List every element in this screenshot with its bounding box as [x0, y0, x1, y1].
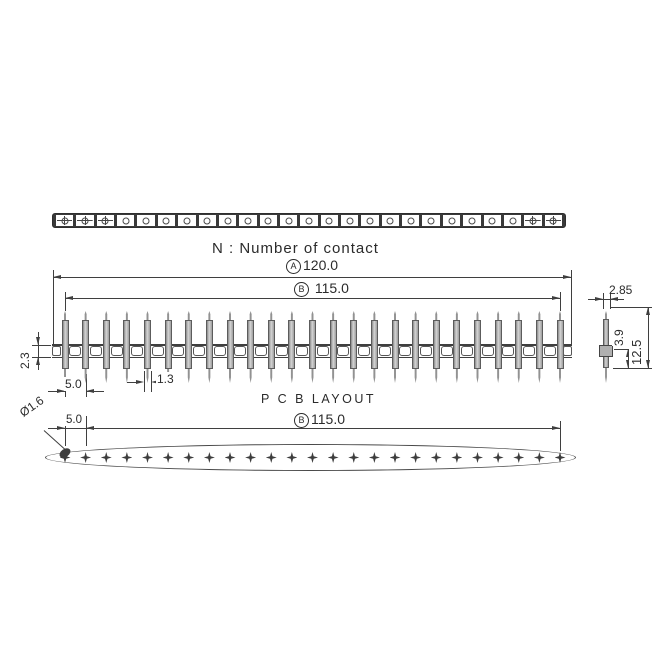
contact-pin-ptipb [371, 369, 378, 383]
contact-pin [371, 311, 378, 383]
dim-pcb-span-value: 115.0 [311, 411, 345, 427]
contact-pin-pbody [350, 320, 357, 369]
body-link [523, 346, 535, 356]
strip-cell [97, 215, 114, 226]
contact-pin-pbody [82, 320, 89, 369]
contact-pin [123, 311, 130, 383]
body-end-cap-right [563, 346, 572, 356]
arrow-pcb-pitch-left [57, 426, 65, 430]
contact-pin [536, 311, 543, 383]
arrow-detail-width-left [595, 297, 603, 301]
contact-pin-pbody [536, 320, 543, 369]
contact-pin [268, 311, 275, 383]
contact-pin-ptipb [103, 369, 110, 383]
contact-pin-pbody [144, 320, 151, 369]
contact-pin-ptipt [144, 311, 151, 320]
contact-pin-pbody [227, 320, 234, 369]
contact-pin-ptipb [206, 369, 213, 383]
contact-pin-ptipt [62, 311, 69, 320]
contact-pin-ptipt [392, 311, 399, 320]
arrow-pcb-span-right [552, 426, 560, 430]
ext-line-body-top [30, 345, 51, 346]
dim-pin-total-length: 12.5 [629, 317, 644, 365]
technical-drawing-pin-header: N : Number of contact A120.0 B 115.0 2.3… [0, 0, 667, 655]
pcb-layout-title: P C B LAYOUT [261, 392, 376, 406]
contact-pin-ptipt [536, 311, 543, 320]
ext-line-body-bottom [30, 357, 51, 358]
contact-pin [330, 311, 337, 383]
strip-cell [484, 215, 501, 226]
contact-pin-ptipb [268, 369, 275, 383]
dim-line-detail-width [588, 299, 624, 300]
contact-pin-ptipb [227, 369, 234, 383]
contact-pin-pbody [185, 320, 192, 369]
arrow-detail-width-right [610, 297, 618, 301]
body-link [172, 346, 184, 356]
contact-pin-pbody [453, 320, 460, 369]
contact-pin-pbody [62, 320, 69, 369]
body-link [276, 346, 288, 356]
arrow-b-right [552, 296, 560, 300]
contact-pin-ptipt [82, 311, 89, 320]
contact-pin [453, 311, 460, 383]
arrow-total-bottom [646, 360, 650, 368]
contact-pin-ptipt [350, 311, 357, 320]
contact-pin [103, 311, 110, 383]
strip-cell [545, 215, 562, 226]
contact-pin-pbody [515, 320, 522, 369]
body-link [544, 346, 556, 356]
contact-pin-ptipb [536, 369, 543, 383]
strip-cell [463, 215, 480, 226]
arrow-a-right [563, 275, 571, 279]
strip-cell [443, 215, 460, 226]
contact-pin-ptipt [288, 311, 295, 320]
dim-contact-span: B 115.0 [292, 280, 351, 297]
dim-pcb-hole-pitch: 5.0 [65, 414, 83, 426]
contact-pin-pbody [165, 320, 172, 369]
contact-pin-pbody [412, 320, 419, 369]
contact-pin-ptipt [309, 311, 316, 320]
contact-pin-ptipt [515, 311, 522, 320]
strip-cell [199, 215, 216, 226]
contact-pin [82, 311, 89, 383]
detail-pin-insulator-block [599, 345, 613, 357]
body-link [90, 346, 102, 356]
contact-pin-ptipb [247, 369, 254, 383]
contact-pin-ptipb [123, 369, 130, 383]
strip-cell [239, 215, 256, 226]
dim-body-height: 2.3 [18, 343, 32, 369]
contact-pin-pbody [474, 320, 481, 369]
contact-pin-pbody [330, 320, 337, 369]
strip-cell [300, 215, 317, 226]
ext-line-detail-width-left [603, 293, 604, 309]
body-link [214, 346, 226, 356]
contact-pin-ptipt [474, 311, 481, 320]
dim-pcb-span: B115.0 [292, 411, 347, 428]
strip-cell [178, 215, 195, 226]
arrow-thickness-left [136, 380, 144, 384]
arrow-b-left [65, 296, 73, 300]
body-link [234, 346, 246, 356]
strip-cell [260, 215, 277, 226]
strip-cell [361, 215, 378, 226]
contact-pin-ptipb [185, 369, 192, 383]
contact-pin-pbody [247, 320, 254, 369]
contact-pin [144, 311, 151, 383]
contact-pin-ptipt [330, 311, 337, 320]
body-link [461, 346, 473, 356]
dim-label-b-circle: B [294, 282, 309, 297]
strip-cell [158, 215, 175, 226]
dim-line-total-length [648, 307, 649, 368]
strip-cell [504, 215, 521, 226]
strip-cell [341, 215, 358, 226]
dim-detail-pin-width: 2.85 [609, 283, 632, 297]
body-link [399, 346, 411, 356]
ext-line-b-right [560, 292, 561, 311]
ext-line-b-left [65, 292, 66, 311]
contact-pin-pbody [557, 320, 564, 369]
body-link [69, 346, 81, 356]
dim-label-a-circle: A [286, 259, 301, 274]
contact-pin-ptipt [268, 311, 275, 320]
contact-pin [247, 311, 254, 383]
contact-pin-ptipb [433, 369, 440, 383]
strip-cell [524, 215, 541, 226]
contact-pin-ptipb [82, 369, 89, 383]
arrow-pitch-right [86, 389, 94, 393]
body-link [111, 346, 123, 356]
contact-pin [309, 311, 316, 383]
contact-pin-ptipt [206, 311, 213, 320]
strip-cell [402, 215, 419, 226]
contact-pin-pbody [433, 320, 440, 369]
contact-pin-ptipb [474, 369, 481, 383]
contact-pin-ptipb [330, 369, 337, 383]
contact-pin-pbody [103, 320, 110, 369]
dim-label-pcb-b-circle: B [294, 413, 309, 428]
arrow-body-top [36, 337, 40, 345]
contact-pin-ptipt [123, 311, 130, 320]
contact-pin [474, 311, 481, 383]
body-link [131, 346, 143, 356]
body-link [441, 346, 453, 356]
contact-pin-pbody [371, 320, 378, 369]
contact-pin [206, 311, 213, 383]
body-end-cap-left [52, 346, 61, 356]
contact-pin [62, 311, 69, 383]
contact-pin-pbody [206, 320, 213, 369]
contact-pin-ptipt [227, 311, 234, 320]
contact-pin-ptipb [453, 369, 460, 383]
strip-cell [422, 215, 439, 226]
arrow-pcb-pitch-right [86, 426, 94, 430]
contact-pin-ptipt [557, 311, 564, 320]
arrow-total-top [646, 307, 650, 315]
contact-pin-pbody [288, 320, 295, 369]
ext-line-pcb-pitch-right [86, 416, 87, 446]
contact-pin-ptipb [309, 369, 316, 383]
contact-pin-ptipt [185, 311, 192, 320]
contact-pin-pbody [123, 320, 130, 369]
body-link [152, 346, 164, 356]
contact-pin-ptipt [371, 311, 378, 320]
contact-pin-ptipt [495, 311, 502, 320]
strip-cell [321, 215, 338, 226]
contact-pin-ptipt [433, 311, 440, 320]
ext-line-pcb-right [560, 421, 561, 451]
detail-pin-body [603, 319, 609, 368]
detail-pin-tip-bottom [603, 368, 609, 383]
dim-line-pcb-span [48, 428, 560, 429]
contact-pin [288, 311, 295, 383]
body-link [420, 346, 432, 356]
contact-pin [392, 311, 399, 383]
ext-line-a-right [571, 270, 572, 344]
strip-cell [56, 215, 73, 226]
arrow-body-bottom [36, 357, 40, 365]
body-link [379, 346, 391, 356]
body-link [193, 346, 205, 356]
contact-pin-pbody [392, 320, 399, 369]
dim-pin-thickness: 1.3 [156, 372, 175, 386]
contact-pin [227, 311, 234, 383]
contact-pin-pbody [268, 320, 275, 369]
dim-pin-pitch: 5.0 [64, 377, 83, 391]
contact-pin [433, 311, 440, 383]
contact-pin-ptipb [144, 369, 151, 383]
arrow-a-left [53, 275, 61, 279]
strip-cell [76, 215, 93, 226]
strip-cell [137, 215, 154, 226]
strip-cell [382, 215, 399, 226]
body-link [317, 346, 329, 356]
contact-pin-ptipb [515, 369, 522, 383]
ext-line-detail-bottom [613, 368, 652, 369]
dim-contact-span-value: 115.0 [315, 280, 349, 296]
body-link [255, 346, 267, 356]
contact-pin-ptipb [288, 369, 295, 383]
contact-pin-ptipb [350, 369, 357, 383]
dim-hole-diameter: Ø1.6 [17, 393, 46, 419]
contact-pin-ptipb [557, 369, 564, 383]
body-link [296, 346, 308, 356]
contact-pin-ptipt [165, 311, 172, 320]
body-link [358, 346, 370, 356]
ext-line-a-left [53, 270, 54, 344]
body-link [502, 346, 514, 356]
strip-cell [280, 215, 297, 226]
contact-pin [557, 311, 564, 383]
strip-cell [117, 215, 134, 226]
contact-pin [495, 311, 502, 383]
strip-cell [219, 215, 236, 226]
contact-pin [412, 311, 419, 383]
contact-pin [515, 311, 522, 383]
top-view-strip [52, 213, 566, 228]
dim-line-b [65, 298, 560, 299]
contact-pin [185, 311, 192, 383]
contact-count-note: N : Number of contact [212, 240, 379, 257]
contact-pin-ptipb [495, 369, 502, 383]
contact-pin-ptipb [392, 369, 399, 383]
contact-pin-ptipt [453, 311, 460, 320]
dim-overall-length: A120.0 [284, 257, 340, 274]
contact-pin-ptipt [247, 311, 254, 320]
contact-pin-ptipt [412, 311, 419, 320]
dim-line-a [53, 277, 571, 278]
contact-pin-ptipt [103, 311, 110, 320]
contact-pin-pbody [495, 320, 502, 369]
body-link [337, 346, 349, 356]
contact-pin-pbody [309, 320, 316, 369]
dim-overall-length-value: 120.0 [303, 257, 338, 273]
dim-pin-tail-length: 3.9 [612, 319, 626, 346]
body-link [482, 346, 494, 356]
contact-pin [350, 311, 357, 383]
contact-pin-ptipb [412, 369, 419, 383]
